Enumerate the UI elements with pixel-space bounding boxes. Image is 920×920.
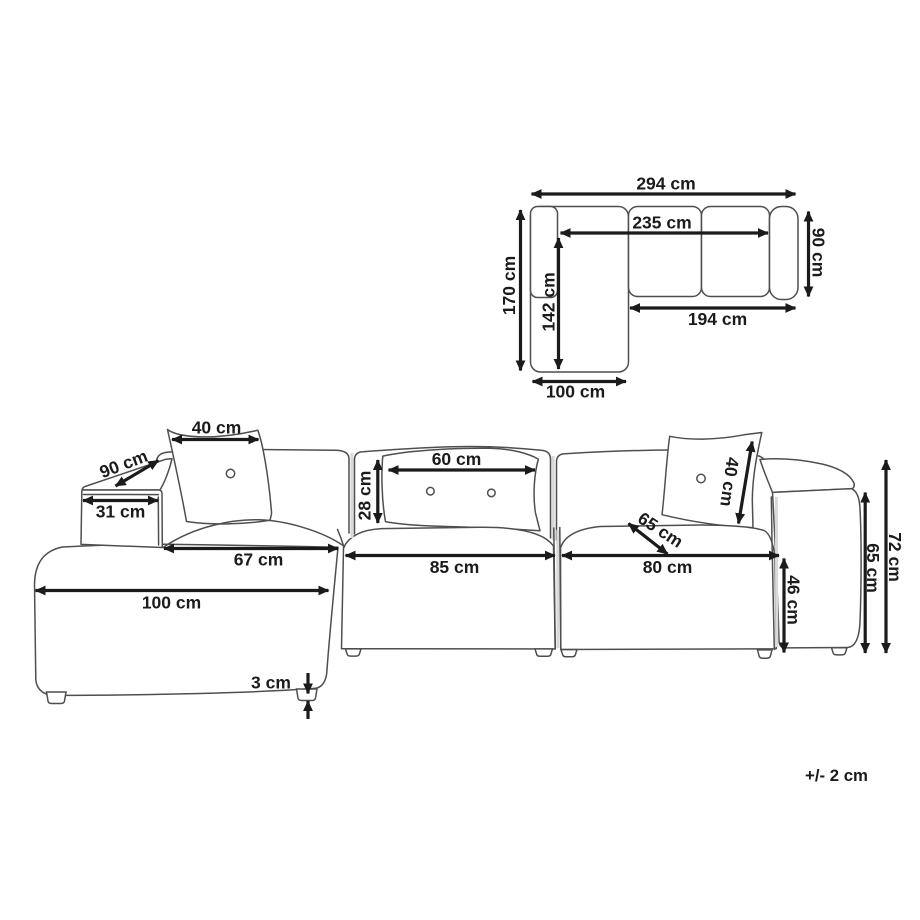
svg-text:67 cm: 67 cm	[234, 550, 284, 570]
svg-text:100 cm: 100 cm	[142, 593, 201, 613]
svg-text:65 cm: 65 cm	[863, 543, 883, 593]
svg-text:85 cm: 85 cm	[430, 557, 480, 577]
svg-text:3 cm: 3 cm	[251, 673, 291, 693]
svg-text:72 cm: 72 cm	[885, 532, 905, 582]
svg-text:28 cm: 28 cm	[355, 471, 375, 521]
svg-text:31 cm: 31 cm	[96, 502, 146, 522]
svg-text:46 cm: 46 cm	[783, 575, 803, 625]
svg-text:194 cm: 194 cm	[688, 309, 747, 329]
svg-text:60 cm: 60 cm	[432, 449, 482, 469]
svg-text:142 cm: 142 cm	[539, 272, 559, 331]
svg-text:+/- 2 cm: +/- 2 cm	[805, 766, 868, 785]
svg-text:40 cm: 40 cm	[192, 418, 242, 438]
svg-text:90 cm: 90 cm	[808, 228, 828, 278]
svg-text:100 cm: 100 cm	[546, 382, 605, 402]
svg-text:170 cm: 170 cm	[499, 256, 519, 315]
svg-text:294 cm: 294 cm	[636, 174, 695, 194]
svg-text:235 cm: 235 cm	[632, 213, 691, 233]
svg-text:80 cm: 80 cm	[643, 557, 693, 577]
